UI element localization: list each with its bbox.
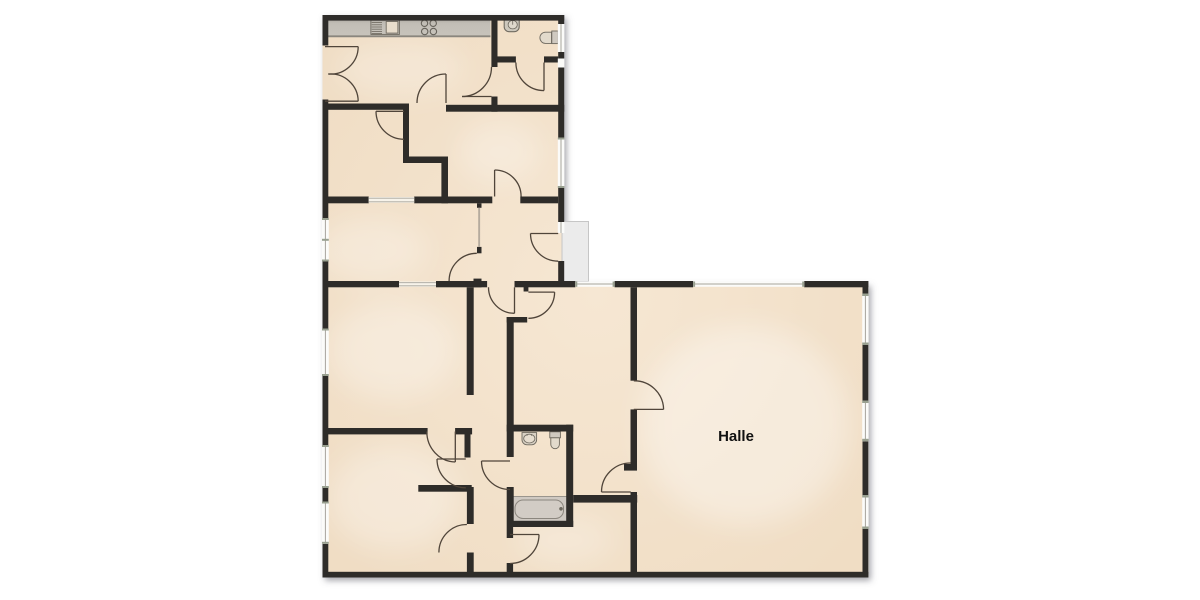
svg-text:Halle: Halle bbox=[718, 428, 754, 445]
